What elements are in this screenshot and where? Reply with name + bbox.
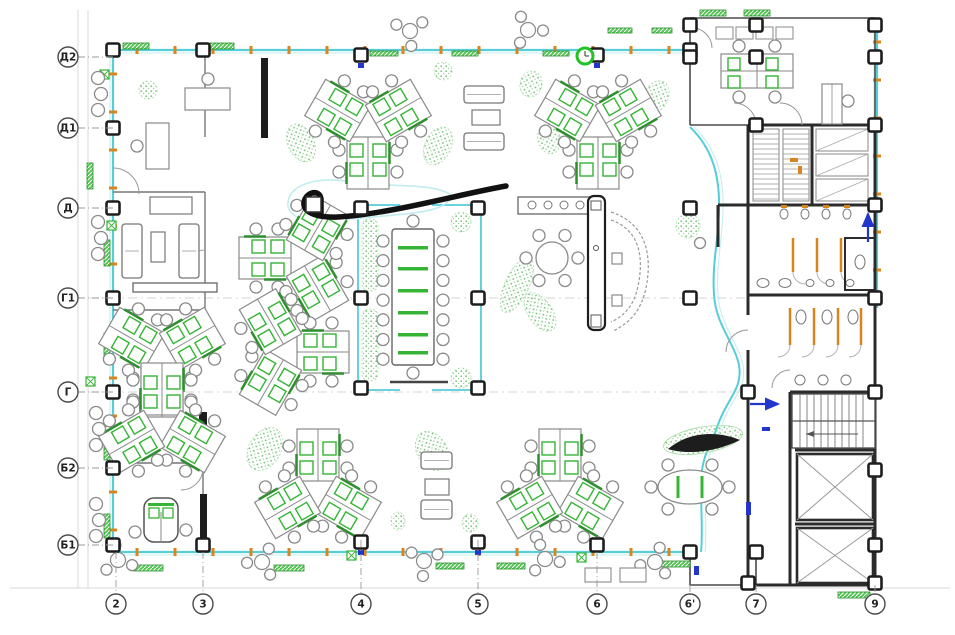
plant [676,214,700,238]
desk-branch [297,317,349,387]
axis-col-marker: 4 [351,594,371,614]
terrace-table [585,568,611,582]
axis-col-marker: 3 [193,594,213,614]
column-section [869,51,882,64]
planter-box [347,551,356,560]
chair [520,252,532,264]
chair [263,543,274,554]
mullion-tick [516,548,519,556]
mullion-tick [250,46,253,54]
mullion-tick [630,46,633,54]
chair [391,19,402,30]
mullion-tick [668,46,671,54]
monitor [728,76,740,88]
stall-door-arc [778,345,790,357]
stall-door-arc [793,272,805,284]
planter-strip [744,10,770,16]
column-section [869,292,882,305]
monitor [271,240,284,253]
planter-strip [274,565,304,571]
column-section [742,386,755,399]
planter-strip [370,51,398,56]
axis-col-marker: 7 [746,594,766,614]
stairwell [792,394,875,448]
blue-marker [746,502,751,515]
chair [92,72,105,85]
monitor [542,461,555,474]
chair [660,568,671,579]
column-section [684,51,697,64]
column [684,546,697,559]
axis-col-marker: 5 [468,594,488,614]
stool [612,295,622,306]
axis-col-marker: 6' [680,594,700,614]
column [869,199,882,212]
column-section [750,119,763,132]
desk-cluster [298,67,439,189]
axis-col-marker: 9 [865,594,885,614]
round-table [417,554,432,569]
chair [437,314,449,326]
axis-row-marker: Б1 [58,535,78,555]
column-section [869,199,882,212]
chair [95,88,108,101]
monitor [149,508,159,518]
chair [202,73,214,85]
quad-desk-cluster [716,27,854,124]
desk-cluster [528,67,669,189]
lounge-left [122,197,217,292]
chair [769,40,781,52]
column-section [869,539,882,552]
column [197,44,210,57]
banquette-seat [611,220,640,322]
elevator-shaft [797,454,873,520]
chair [515,11,526,22]
column-section [750,51,763,64]
column [869,119,882,132]
chair [530,565,541,576]
desk-branch [127,363,197,415]
column [869,51,882,64]
urinal-screen [844,205,850,208]
bar-fixture [591,315,601,327]
desk [146,123,169,169]
chair [377,274,389,286]
chair [90,498,103,511]
chair [377,314,389,326]
axis-label: 7 [752,599,759,611]
mullion-tick [402,46,405,54]
desk-branch [525,429,595,481]
column-section [197,539,210,552]
desk-screen-edge [148,503,174,506]
axis-label: Б2 [60,463,75,475]
chair [537,25,548,36]
table-divider [398,351,428,355]
bar-counter [588,196,605,330]
column-section [684,19,697,32]
column [472,202,485,215]
planter-strip [660,561,690,567]
stall-door-arc [826,345,838,357]
chair [437,294,449,306]
hedge-planter [362,219,378,291]
chair [283,440,295,452]
blue-marker [762,427,770,431]
column-section [869,119,882,132]
table-divider [398,311,428,315]
axis-row-marker: Г [58,382,78,402]
monitor [323,357,336,370]
chair [437,353,449,365]
planter-strip [497,563,525,569]
credenza [133,283,217,292]
urinal-screen [823,205,829,208]
axis-row-marker: Д1 [58,118,78,138]
monitor [167,376,180,389]
column [355,382,368,395]
column [355,292,368,305]
planter-box [107,221,116,230]
axis-col-marker: 6 [587,594,607,614]
toilet [822,310,832,324]
column [869,464,882,477]
column [472,292,485,305]
floor-plan-canvas: Д2Д1ДГ1ГБ2Б1234566'79 [0,0,955,635]
mullion-tick [174,46,177,54]
mullion-tick [554,548,557,556]
mullion-tick [250,548,253,556]
chair [533,275,545,287]
plant [434,62,452,80]
chair [90,439,103,452]
column [869,292,882,305]
stall-door-arc [849,345,861,357]
coffee-table [425,479,449,495]
chair [662,459,674,471]
bench-marker [790,158,798,162]
column-section [742,577,755,590]
plant [451,212,471,232]
column-section [472,202,485,215]
chair [377,235,389,247]
chair [250,281,262,293]
chair [406,40,417,51]
axis-label: 2 [112,599,119,611]
axis-label: 6' [685,599,696,611]
sink [818,375,828,385]
stool [612,253,622,264]
terrace-table-set [391,17,428,52]
chair [654,542,665,553]
column-section [197,44,210,57]
monitor [373,144,386,157]
chair [90,530,103,543]
chair [535,539,546,550]
urinal [843,209,851,219]
column [197,539,210,552]
blue-marker [694,566,699,575]
chair [341,440,353,452]
small-office-desk [129,498,192,542]
wall-pier [200,494,207,542]
axis-label: 4 [357,599,364,611]
monitor [766,76,778,88]
planter-strip [436,563,464,569]
column [869,539,882,552]
planter-strip [838,592,870,598]
column [750,546,763,559]
monitor [603,144,616,157]
planter-strip [87,163,93,189]
oval-meeting-set [645,459,735,515]
mullion-tick [288,548,291,556]
column [742,386,755,399]
column-section [869,464,882,477]
chair [242,557,253,568]
column-sensor [358,63,364,68]
coffee-table [151,232,165,262]
sink [779,279,791,288]
monitor [323,461,336,474]
chair [407,367,419,379]
column-section [750,546,763,559]
mullion-tick [402,548,405,556]
column-section [472,382,485,395]
chair [406,547,417,558]
chair [437,235,449,247]
mullion-tick [109,111,117,114]
chair [326,317,338,329]
axis-row-marker: Б2 [58,458,78,478]
table-divider [398,267,428,271]
reception-stool [306,197,321,212]
desk [185,88,230,110]
axis-label: 9 [871,599,878,611]
chair [333,166,345,178]
axis-label: Д1 [60,123,77,135]
shelf-unit [776,27,793,39]
chair [326,375,338,387]
monitor [252,240,265,253]
round-table [538,552,553,567]
planter-box [577,553,586,562]
column-section [472,292,485,305]
monitor [350,163,363,176]
chair [93,423,106,436]
terrace-table-set [242,543,276,580]
kitchen-counter [518,197,590,214]
desk-branch [563,137,633,189]
chair [90,407,103,420]
mullion-tick [109,187,117,190]
chair [559,229,571,241]
mullion-tick [109,377,117,380]
chair [377,334,389,346]
chair [95,232,108,245]
column [750,19,763,32]
plant [451,368,471,388]
toilet [855,255,865,269]
chair [417,570,428,581]
column [869,19,882,32]
axis-label: 3 [199,599,206,611]
monitor [304,334,317,347]
terrace-table [620,568,646,582]
column [472,382,485,395]
chair [92,216,105,229]
mullion-tick [109,491,117,494]
urinal-screen [781,205,787,208]
chair [695,238,706,249]
column [107,44,120,57]
chair [437,255,449,267]
planter-strip [700,10,726,16]
round-table [521,23,536,38]
planter-strip [543,51,569,56]
sink [846,280,854,287]
stall-door-arc [802,345,814,357]
column-section [750,19,763,32]
chair [92,104,105,117]
axis-label: Д [63,203,72,215]
axis-label: Б1 [60,540,75,552]
column [742,577,755,590]
monitor [144,395,157,408]
chair [437,274,449,286]
mullion-tick [288,46,291,54]
banquette-seat [611,212,648,331]
plant [139,81,157,99]
planter-box [86,377,95,386]
desk-cluster [490,429,631,551]
axis-label: 5 [474,599,481,611]
coat-rack [753,129,779,201]
chair [265,569,276,580]
monitor [728,58,740,70]
desk-branch [239,223,291,293]
mullion-tick [212,548,215,556]
mullion-tick [136,548,139,556]
chair [377,294,389,306]
column-section [869,386,882,399]
sink [795,375,805,385]
chair [185,374,197,386]
column-section [355,382,368,395]
chair [842,95,854,107]
planter-strip [608,28,632,33]
chair [723,481,735,493]
chair [645,481,657,493]
urinal [780,209,788,219]
toilet [796,310,806,324]
axis-label: Г [65,387,72,399]
monitor [373,163,386,176]
mullion-tick [109,73,117,76]
mullion-tick [440,46,443,54]
coat-rack [783,129,809,201]
mullion-tick [668,548,671,556]
chair [437,334,449,346]
chair [391,166,403,178]
monitor [766,58,778,70]
terrace-table-set [515,11,549,48]
column-section [684,292,697,305]
floor-plan-screenshot: Д2Д1ДГ1ГБ2Б1234566'79 [0,0,955,635]
axis-label: Г1 [61,293,75,305]
round-table [255,555,270,570]
chair [131,140,143,152]
axis-label: Д2 [60,52,77,64]
chair [559,275,571,287]
monitor [163,508,173,518]
table-divider [398,333,428,337]
chair [563,166,575,178]
chair [250,223,262,235]
door-swing-arc [772,370,790,388]
chair [525,440,537,452]
toilet [848,310,858,324]
chair [572,252,584,264]
column [684,292,697,305]
column [684,19,697,32]
axis-row-marker: Д [58,198,78,218]
chair [377,255,389,267]
chair [733,40,745,52]
round-table [536,242,568,274]
shelf-unit [716,27,733,39]
bench-marker [798,166,802,174]
monitor [565,461,578,474]
mullion-tick [630,548,633,556]
monitor [300,461,313,474]
sink [757,279,769,288]
axis-col-marker: 2 [106,594,126,614]
mullion-tick [326,548,329,556]
desk-branch [283,429,353,481]
door-swing-arc [113,168,139,194]
column-section [355,49,368,62]
monitor [323,442,336,455]
coffee-table [472,110,500,125]
chair [662,503,674,515]
sink [826,280,834,287]
lounge-bottom [421,452,452,519]
chair [706,503,718,515]
column [869,386,882,399]
lounge-top [464,86,504,150]
column-section [684,546,697,559]
plant [462,514,478,532]
monitor [603,163,616,176]
column [684,51,697,64]
sink [806,280,814,287]
column [355,202,368,215]
chair [554,556,565,567]
chair [180,524,192,536]
axis-row-marker: Г1 [58,288,78,308]
chair [769,91,781,103]
monitor [565,442,578,455]
monitor [304,357,317,370]
axis-row-marker: Д2 [58,47,78,67]
door-swing-arc [780,103,802,125]
axis-label: 6 [593,599,600,611]
oval-table [658,470,722,504]
monitor [580,144,593,157]
column-section [355,292,368,305]
